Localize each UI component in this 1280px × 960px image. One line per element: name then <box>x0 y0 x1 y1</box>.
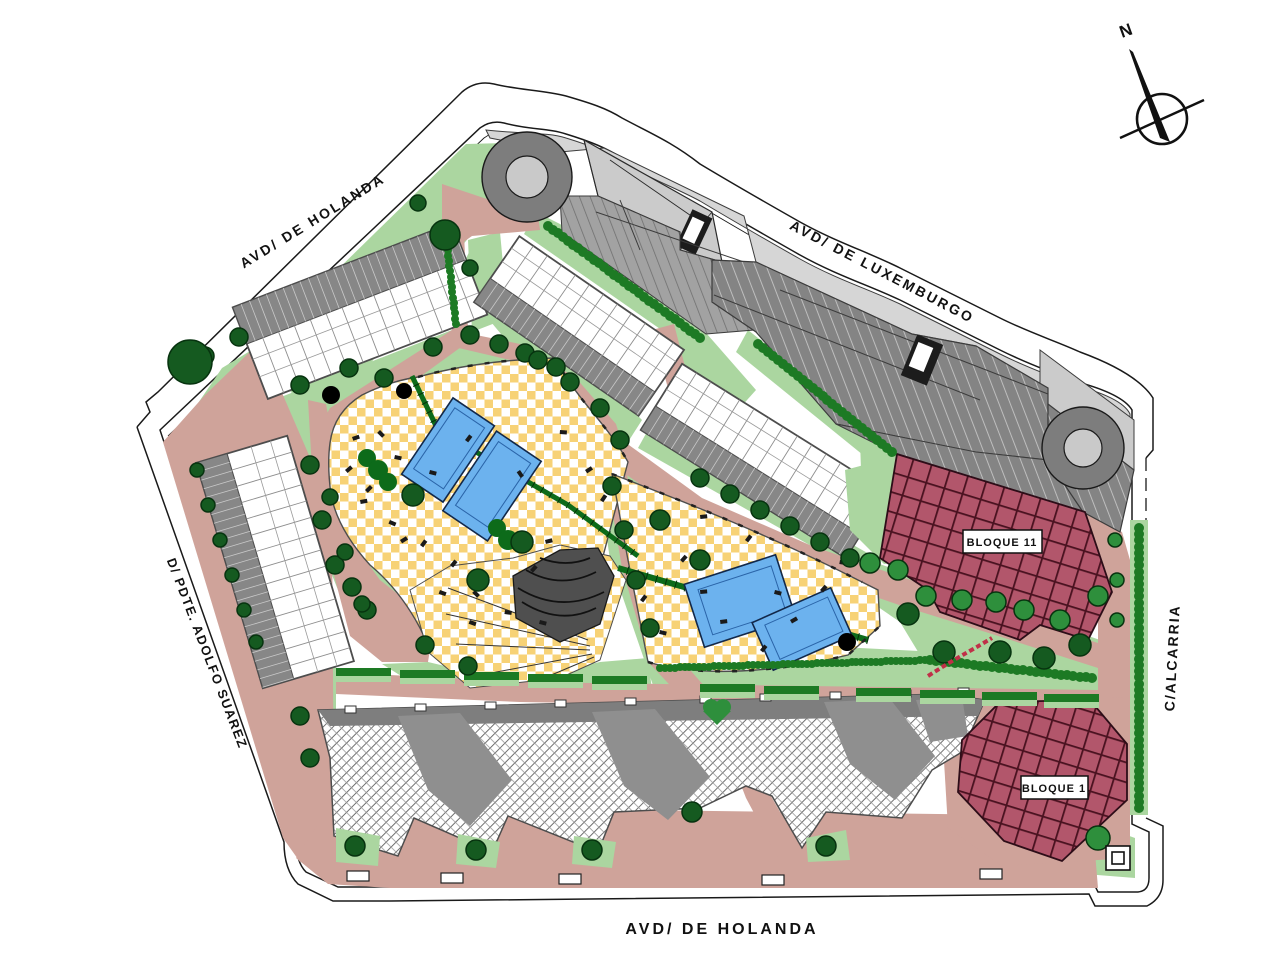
svg-text:AVD/ DE HOLANDA: AVD/ DE HOLANDA <box>625 921 818 938</box>
svg-text:BLOQUE 11: BLOQUE 11 <box>967 537 1038 549</box>
svg-text:BLOQUE 1: BLOQUE 1 <box>1022 783 1086 795</box>
